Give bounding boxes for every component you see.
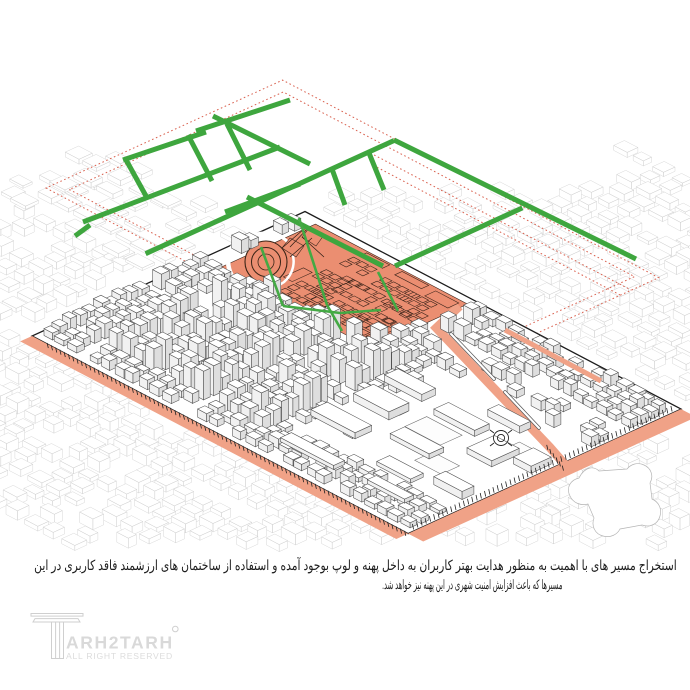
- svg-text:ARH2TARH: ARH2TARH: [66, 633, 174, 653]
- svg-text:ALL RIGHT RESERVED: ALL RIGHT RESERVED: [66, 651, 173, 661]
